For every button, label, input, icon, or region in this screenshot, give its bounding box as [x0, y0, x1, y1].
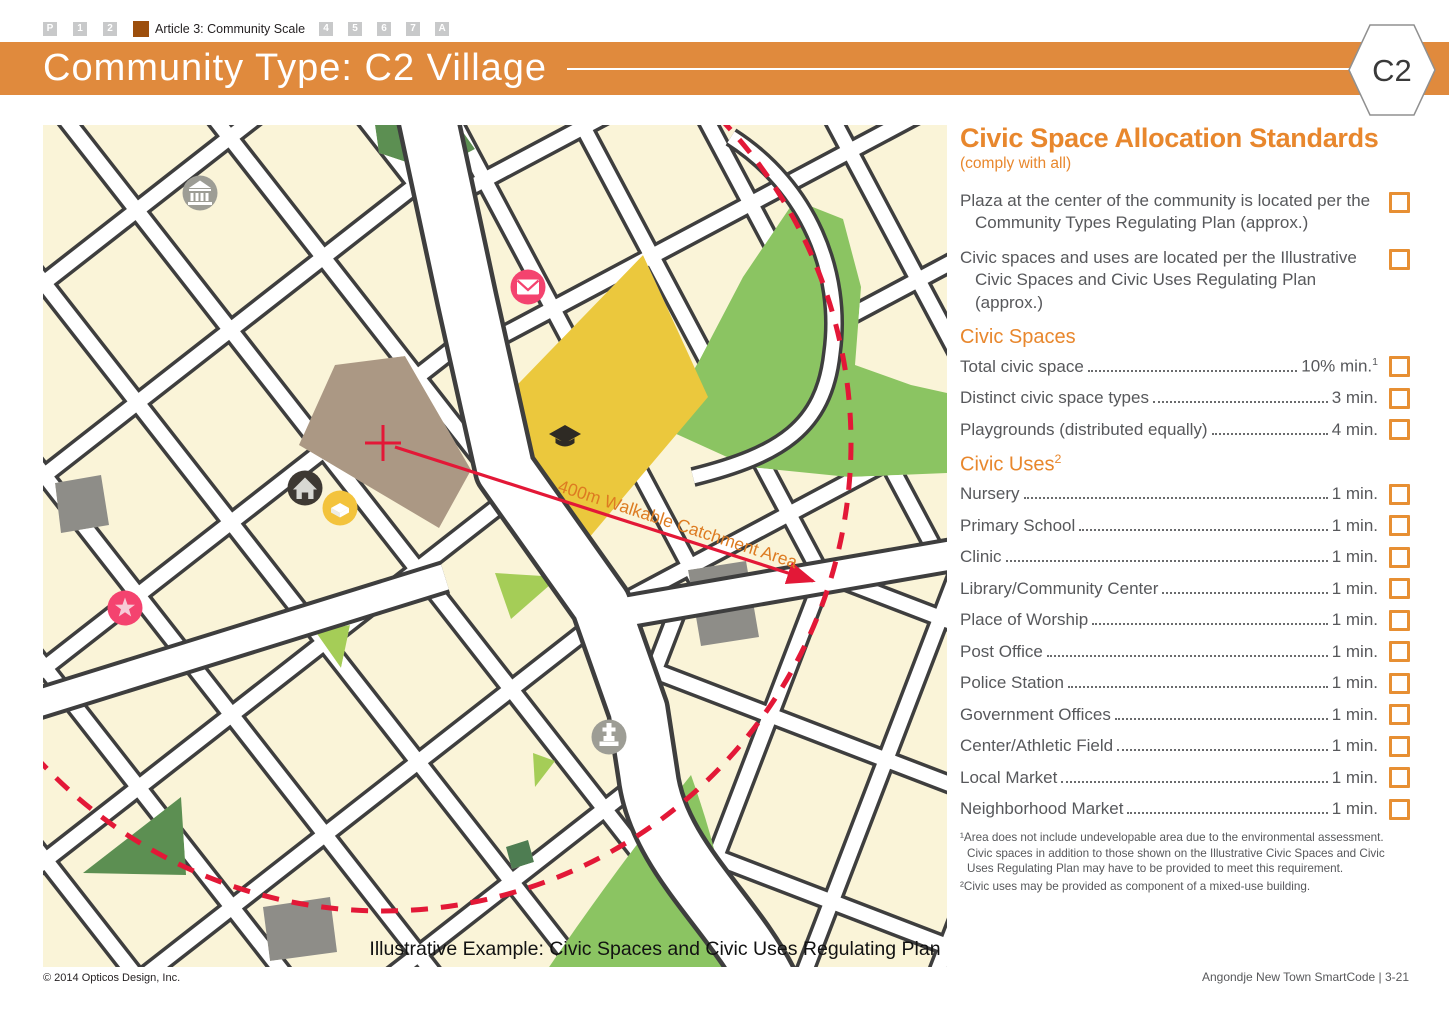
- panel-intro-items: Plaza at the center of the community is …: [960, 190, 1410, 314]
- section-heading-civic-uses: Civic Uses2: [960, 452, 1410, 477]
- row-label: Center/Athletic Field: [960, 736, 1113, 756]
- community-type-badge: C2: [1348, 23, 1436, 117]
- checklist-row: Post Office1 min.: [960, 641, 1410, 662]
- checkbox-primary-school[interactable]: [1389, 515, 1410, 536]
- dot-leader: [1061, 781, 1327, 783]
- nav-box-2[interactable]: 2: [103, 22, 117, 36]
- dot-leader: [1117, 749, 1328, 751]
- nav-box-5[interactable]: 5: [348, 22, 362, 36]
- dot-leader: [1212, 433, 1328, 435]
- dot-leader: [1047, 655, 1328, 657]
- row-value: 1 min.: [1332, 610, 1378, 630]
- header-rule: [567, 68, 1352, 70]
- article-label: Article 3: Community Scale: [155, 22, 305, 36]
- row-label: Primary School: [960, 516, 1075, 536]
- row-value: 1 min.: [1332, 484, 1378, 504]
- row-label: Total civic space: [960, 357, 1084, 377]
- row-label: Library/Community Center: [960, 579, 1158, 599]
- dot-leader: [1006, 560, 1328, 562]
- nav-left-boxes: P12: [43, 22, 133, 36]
- row-value: 10% min.1: [1301, 356, 1378, 377]
- checkbox-police-station[interactable]: [1389, 673, 1410, 694]
- map-caption: Illustrative Example: Civic Spaces and C…: [369, 938, 940, 960]
- dot-leader: [1079, 529, 1327, 531]
- nav-box-1[interactable]: 1: [73, 22, 87, 36]
- panel-title: Civic Space Allocation Standards: [960, 123, 1410, 154]
- nav-box-a[interactable]: A: [435, 22, 449, 36]
- row-label: Local Market: [960, 768, 1057, 788]
- monument-icon: [592, 720, 627, 755]
- nav-box-7[interactable]: 7: [406, 22, 420, 36]
- mail-icon: [511, 270, 546, 305]
- row-value: 4 min.: [1332, 420, 1378, 440]
- current-article-marker[interactable]: [133, 21, 149, 37]
- footer-page-number: Angondje New Town SmartCode | 3-21: [1202, 970, 1409, 984]
- checkbox-local-market[interactable]: [1389, 767, 1410, 788]
- star-icon: [108, 591, 143, 626]
- section-heading-civic-spaces: Civic Spaces: [960, 326, 1410, 349]
- checkbox-total-civic-space[interactable]: [1389, 356, 1410, 377]
- checklist-row: Place of Worship1 min.: [960, 610, 1410, 631]
- row-value: 1 min.: [1332, 673, 1378, 693]
- checkbox-distinct-civic-space-types[interactable]: [1389, 388, 1410, 409]
- row-value: 1 min.: [1332, 642, 1378, 662]
- nav-box-p[interactable]: P: [43, 22, 57, 36]
- row-value: 1 min.: [1332, 547, 1378, 567]
- checklist-row: Total civic space10% min.1: [960, 356, 1410, 377]
- checkbox-place-of-worship[interactable]: [1389, 610, 1410, 631]
- checkbox-post-office[interactable]: [1389, 641, 1410, 662]
- checklist-row: Police Station1 min.: [960, 673, 1410, 694]
- row-value: 1 min.: [1332, 516, 1378, 536]
- panel-sections: Civic SpacesTotal civic space10% min.1Di…: [960, 326, 1410, 820]
- regulating-plan-map: 400m Walkable Catchment Area: [43, 125, 947, 967]
- row-label: Police Station: [960, 673, 1064, 693]
- checklist-row: Clinic1 min.: [960, 547, 1410, 568]
- checkbox-library-community-center[interactable]: [1389, 578, 1410, 599]
- badge-label: C2: [1372, 53, 1412, 88]
- dot-leader: [1153, 401, 1328, 403]
- dot-leader: [1088, 370, 1297, 372]
- intro-checklist-row: Civic spaces and uses are located per th…: [960, 247, 1410, 314]
- checkbox-playgrounds-distributed-equally[interactable]: [1389, 419, 1410, 440]
- row-value: 3 min.: [1332, 388, 1378, 408]
- nav-box-4[interactable]: 4: [319, 22, 333, 36]
- home-icon: [288, 471, 323, 506]
- intro-text: Civic spaces and uses are located per th…: [960, 247, 1378, 314]
- dot-leader: [1162, 592, 1327, 594]
- footer-copyright: © 2014 Opticos Design, Inc.: [43, 972, 180, 984]
- row-value: 1 min.: [1332, 705, 1378, 725]
- row-label: Playgrounds (distributed equally): [960, 420, 1208, 440]
- panel-subtitle: (comply with all): [960, 155, 1410, 173]
- checkbox-government-offices[interactable]: [1389, 704, 1410, 725]
- row-value: 1 min.: [1332, 736, 1378, 756]
- row-label: Distinct civic space types: [960, 388, 1149, 408]
- dot-leader: [1068, 686, 1328, 688]
- dot-leader: [1092, 623, 1328, 625]
- checklist-row: Nursery1 min.: [960, 484, 1410, 505]
- checklist-row: Primary School1 min.: [960, 515, 1410, 536]
- nav-right-boxes: 4567A: [319, 22, 464, 36]
- row-value: 1 min.: [1332, 799, 1378, 819]
- checklist-row: Playgrounds (distributed equally)4 min.: [960, 419, 1410, 440]
- checklist-row: Center/Athletic Field1 min.: [960, 736, 1410, 757]
- checkbox-clinic[interactable]: [1389, 547, 1410, 568]
- checklist-row: Local Market1 min.: [960, 767, 1410, 788]
- dot-leader: [1127, 812, 1327, 814]
- page-title: Community Type: C2 Village: [43, 47, 547, 90]
- intro-checklist-row: Plaza at the center of the community is …: [960, 190, 1410, 235]
- row-value: 1 min.: [1332, 768, 1378, 788]
- checkbox-nursery[interactable]: [1389, 484, 1410, 505]
- checkbox-neighborhood-market[interactable]: [1389, 799, 1410, 820]
- checklist-row: Neighborhood Market1 min.: [960, 799, 1410, 820]
- checkbox-civic-spaces-and-uses-are-located-per-th[interactable]: [1389, 249, 1410, 270]
- dot-leader: [1115, 718, 1328, 720]
- book-icon: [323, 491, 358, 526]
- row-label: Place of Worship: [960, 610, 1088, 630]
- row-label: Government Offices: [960, 705, 1111, 725]
- footnote: ²Civic uses may be provided as component…: [960, 879, 1410, 894]
- row-label: Nursery: [960, 484, 1020, 504]
- checkbox-plaza-at-the-center-of-the-community-is-[interactable]: [1389, 192, 1410, 213]
- checklist-row: Library/Community Center1 min.: [960, 578, 1410, 599]
- intro-text: Plaza at the center of the community is …: [960, 190, 1378, 235]
- dot-leader: [1024, 497, 1328, 499]
- row-label: Clinic: [960, 547, 1002, 567]
- top-nav: P12 Article 3: Community Scale 4567A: [43, 20, 464, 37]
- map-svg: 400m Walkable Catchment Area: [43, 125, 947, 967]
- header-bar: Community Type: C2 Village: [0, 42, 1449, 95]
- checklist-row: Distinct civic space types3 min.: [960, 388, 1410, 409]
- checklist-row: Government Offices1 min.: [960, 704, 1410, 725]
- standards-panel: Civic Space Allocation Standards (comply…: [960, 123, 1410, 897]
- footnote: ¹Area does not include undevelopable are…: [960, 830, 1410, 876]
- museum-icon: [183, 176, 218, 211]
- checkbox-center-athletic-field[interactable]: [1389, 736, 1410, 757]
- row-value: 1 min.: [1332, 579, 1378, 599]
- row-label: Post Office: [960, 642, 1043, 662]
- row-label: Neighborhood Market: [960, 799, 1123, 819]
- panel-footnotes: ¹Area does not include undevelopable are…: [960, 830, 1410, 894]
- page: P12 Article 3: Community Scale 4567A Com…: [0, 0, 1449, 1025]
- nav-box-6[interactable]: 6: [377, 22, 391, 36]
